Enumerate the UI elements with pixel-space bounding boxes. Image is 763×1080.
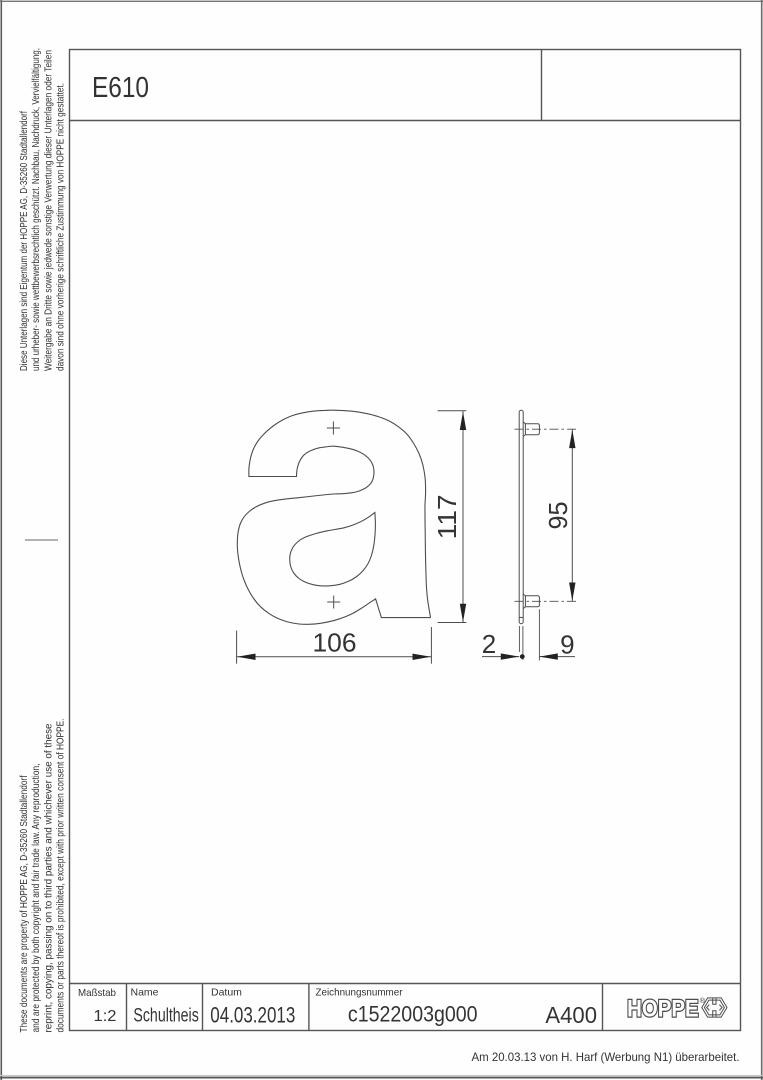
svg-text:und urheber- sowie wettbewerbs: und urheber- sowie wettbewerbsrechtlich … xyxy=(31,48,42,371)
svg-text:Zeichnungsnummer: Zeichnungsnummer xyxy=(316,987,403,999)
svg-text:Schultheis: Schultheis xyxy=(133,1005,199,1027)
svg-text:c1522003g000: c1522003g000 xyxy=(348,1002,478,1027)
svg-text:2: 2 xyxy=(482,629,496,659)
svg-text:04.03.2013: 04.03.2013 xyxy=(210,1003,295,1028)
svg-text:Am 20.03.13 von H. Harf (Werbu: Am 20.03.13 von H. Harf (Werbung N1) übe… xyxy=(472,1050,740,1064)
svg-text:These documents are property o: These documents are property of HOPPE AG… xyxy=(19,775,30,1032)
svg-text:95: 95 xyxy=(543,502,573,530)
svg-text:documents or parts thereof is: documents or parts thereof is prohibited… xyxy=(56,719,67,1033)
svg-text:A400: A400 xyxy=(545,1002,597,1028)
svg-text:davon sind ohne vorherige schr: davon sind ohne vorherige schriftliche Z… xyxy=(56,83,67,371)
svg-text:Weitergabe an Dritte sowie jed: Weitergabe an Dritte sowie jedwede sonst… xyxy=(43,50,54,371)
svg-text:Maßstab: Maßstab xyxy=(78,987,116,999)
svg-text:106: 106 xyxy=(313,630,357,658)
svg-text:117: 117 xyxy=(432,494,462,539)
svg-text:9: 9 xyxy=(560,630,574,660)
svg-text:and are protected by both copy: and are protected by both copyright and … xyxy=(31,764,42,1033)
svg-text:®: ® xyxy=(700,996,706,1005)
svg-text:Datum: Datum xyxy=(211,987,242,999)
svg-text:Diese Unterlagen sind Eigentum: Diese Unterlagen sind Eigentum der HOPPE… xyxy=(19,111,30,371)
svg-text:Name: Name xyxy=(131,987,159,999)
svg-text:1:2: 1:2 xyxy=(94,1008,117,1025)
svg-text:E610: E610 xyxy=(92,72,149,104)
svg-text:reprint, copying, passing on t: reprint, copying, passing on to third pa… xyxy=(43,724,54,1033)
svg-text:HOPPE: HOPPE xyxy=(627,995,699,1022)
